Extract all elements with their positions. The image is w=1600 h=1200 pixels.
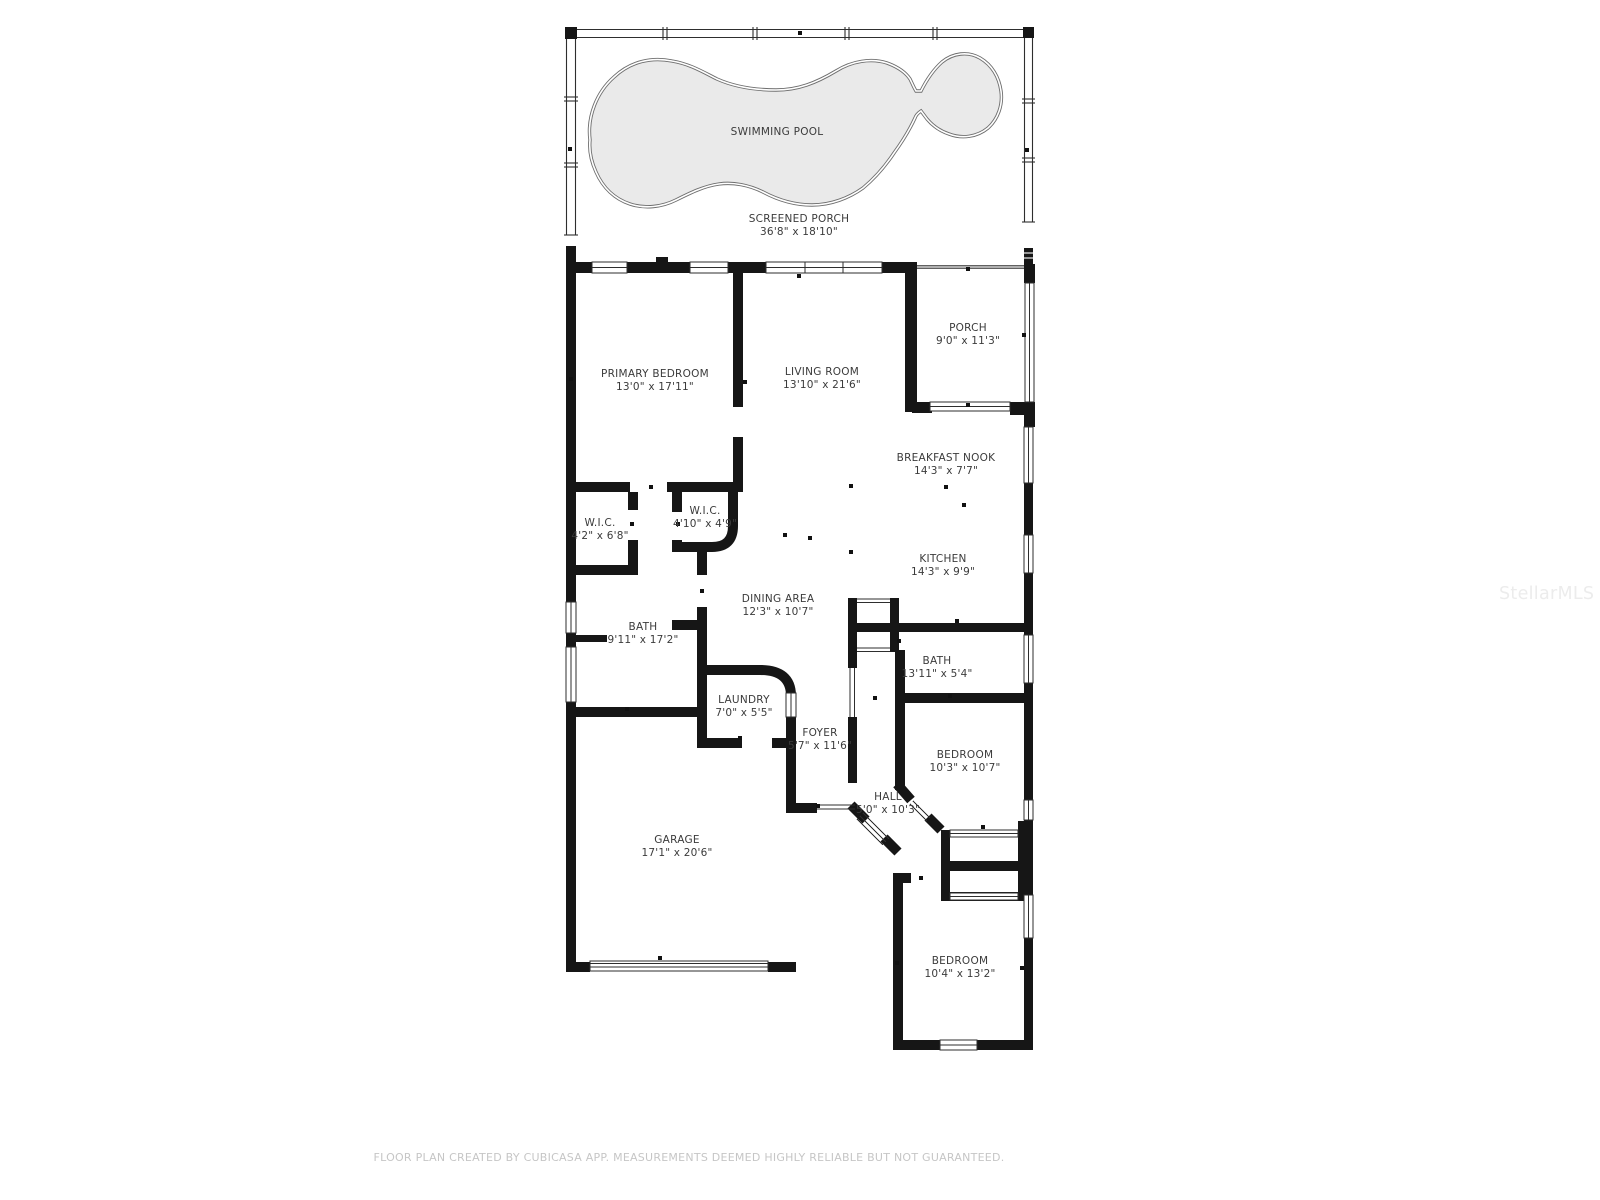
windows [566, 262, 1034, 1050]
floor-plan-drawing [0, 0, 1600, 1200]
footer-disclaimer: FLOOR PLAN CREATED BY CUBICASA APP. MEAS… [374, 1151, 1005, 1164]
stellar-mls-watermark: StellarMLS [1499, 584, 1594, 604]
floor-plan-page: SWIMMING POOL SCREENED PORCH 36'8" x 18'… [0, 0, 1600, 1200]
walls [566, 257, 1035, 1050]
swimming-pool-shape [589, 54, 1001, 207]
